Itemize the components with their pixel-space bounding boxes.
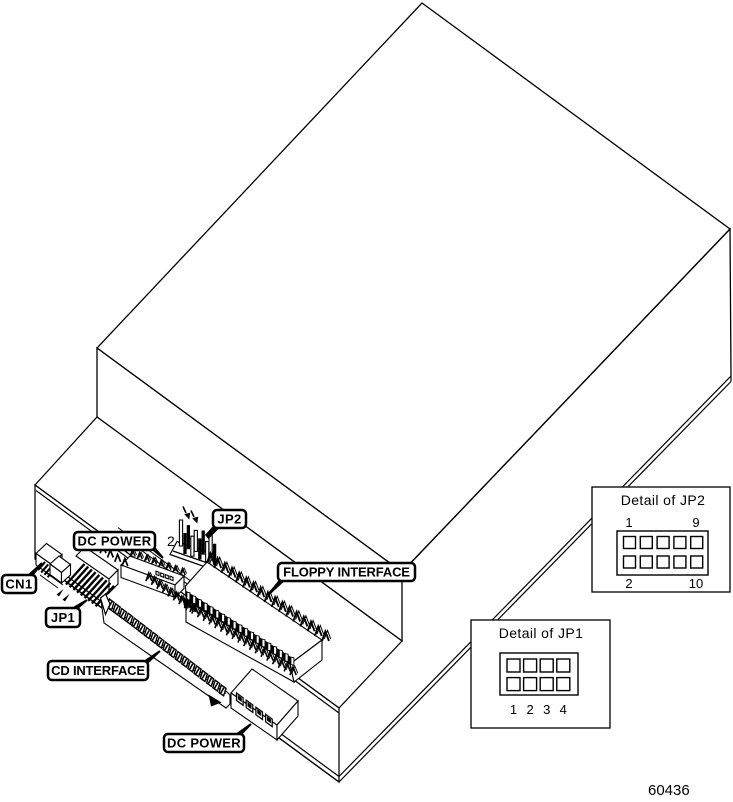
svg-text:DC POWER: DC POWER	[167, 736, 241, 751]
svg-text:DC POWER: DC POWER	[78, 534, 152, 549]
svg-text:1: 1	[625, 515, 632, 530]
svg-text:4: 4	[560, 702, 567, 717]
svg-text:CN1: CN1	[5, 577, 32, 592]
svg-text:JP2: JP2	[217, 512, 241, 527]
svg-text:10: 10	[689, 576, 703, 591]
svg-text:JP1: JP1	[51, 610, 75, 625]
svg-text:9: 9	[692, 515, 699, 530]
svg-text:2: 2	[167, 533, 175, 549]
svg-text:2: 2	[526, 702, 533, 717]
svg-text:CD INTERFACE: CD INTERFACE	[51, 663, 145, 678]
svg-text:3: 3	[543, 702, 550, 717]
svg-text:1: 1	[510, 702, 517, 717]
svg-text:2: 2	[625, 576, 632, 591]
svg-text:Detail of JP1: Detail of JP1	[499, 625, 584, 641]
svg-text:60436: 60436	[648, 782, 690, 799]
svg-text:FLOPPY INTERFACE: FLOPPY INTERFACE	[283, 565, 410, 580]
svg-text:Detail of JP2: Detail of JP2	[621, 492, 706, 508]
